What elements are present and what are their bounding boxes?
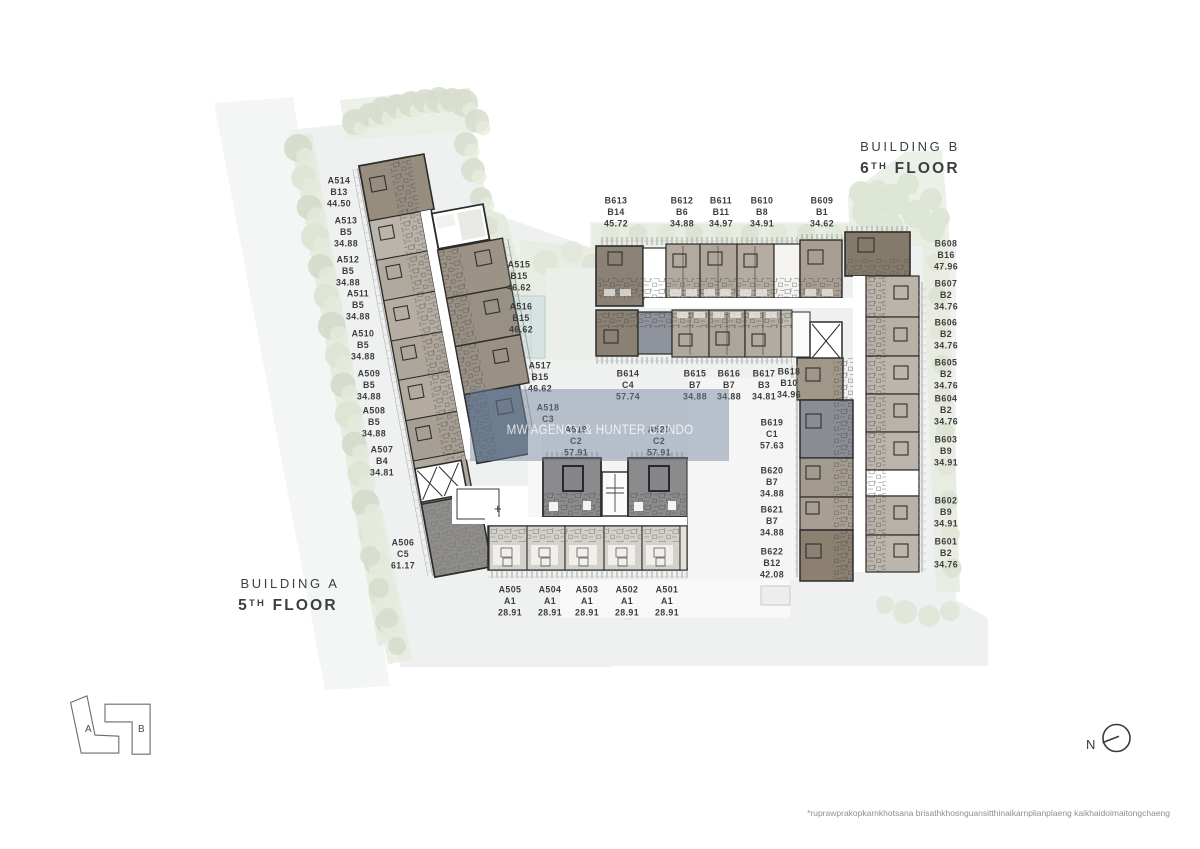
svg-text:B608: B608 <box>935 239 958 249</box>
svg-text:42.08: 42.08 <box>760 570 784 580</box>
svg-text:B2: B2 <box>940 290 952 300</box>
svg-text:B3: B3 <box>758 380 770 390</box>
svg-text:B15: B15 <box>531 372 548 382</box>
svg-text:B2: B2 <box>940 329 952 339</box>
svg-text:34.76: 34.76 <box>934 417 958 427</box>
svg-text:B11: B11 <box>713 207 730 217</box>
svg-text:A507: A507 <box>371 445 394 455</box>
svg-text:B7: B7 <box>689 380 701 390</box>
svg-text:B13: B13 <box>330 187 347 197</box>
svg-text:34.88: 34.88 <box>760 489 784 499</box>
svg-text:B12: B12 <box>763 558 780 568</box>
svg-text:B619: B619 <box>761 418 784 428</box>
svg-text:+: + <box>494 501 502 516</box>
svg-text:34.97: 34.97 <box>709 219 733 229</box>
svg-text:B610: B610 <box>751 196 774 206</box>
svg-text:C1: C1 <box>766 429 778 439</box>
svg-text:34.76: 34.76 <box>934 560 958 570</box>
svg-text:A504: A504 <box>539 585 562 595</box>
svg-text:34.96: 34.96 <box>777 390 801 400</box>
svg-text:B15: B15 <box>512 313 529 323</box>
svg-text:B5: B5 <box>342 266 354 276</box>
svg-text:34.91: 34.91 <box>934 458 958 468</box>
svg-text:C4: C4 <box>622 380 634 390</box>
svg-text:34.88: 34.88 <box>357 392 381 402</box>
svg-text:B5: B5 <box>352 300 364 310</box>
svg-text:B10: B10 <box>780 378 797 388</box>
svg-text:A1: A1 <box>661 596 673 606</box>
svg-text:A1: A1 <box>504 596 516 606</box>
svg-text:34.76: 34.76 <box>934 341 958 351</box>
svg-text:B15: B15 <box>510 271 527 281</box>
svg-text:57.63: 57.63 <box>760 441 784 451</box>
svg-text:B621: B621 <box>761 505 784 515</box>
svg-text:B7: B7 <box>723 380 735 390</box>
svg-text:B616: B616 <box>718 369 741 379</box>
svg-text:44.50: 44.50 <box>327 199 351 209</box>
svg-text:B606: B606 <box>935 318 958 328</box>
svg-text:B617: B617 <box>753 369 776 379</box>
svg-text:A1: A1 <box>581 596 593 606</box>
svg-text:B9: B9 <box>940 446 952 456</box>
svg-text:B1: B1 <box>816 207 828 217</box>
svg-text:B601: B601 <box>935 537 958 547</box>
svg-text:6TH FLOOR: 6TH FLOOR <box>860 160 960 177</box>
svg-text:B620: B620 <box>761 466 784 476</box>
svg-text:A501: A501 <box>656 585 679 595</box>
svg-text:B614: B614 <box>617 369 640 379</box>
svg-text:A508: A508 <box>363 406 386 416</box>
svg-text:BUILDING A: BUILDING A <box>241 576 340 591</box>
svg-text:B14: B14 <box>607 207 624 217</box>
svg-text:47.96: 47.96 <box>934 262 958 272</box>
svg-text:A509: A509 <box>358 369 381 379</box>
svg-text:34.88: 34.88 <box>346 312 370 322</box>
svg-text:28.91: 28.91 <box>655 608 679 618</box>
svg-text:A516: A516 <box>510 302 533 312</box>
svg-text:B612: B612 <box>671 196 694 206</box>
svg-text:A1: A1 <box>544 596 556 606</box>
svg-text:34.88: 34.88 <box>334 239 358 249</box>
svg-text:A506: A506 <box>392 538 415 548</box>
svg-text:B6: B6 <box>676 207 688 217</box>
svg-text:A510: A510 <box>352 329 375 339</box>
svg-text:B605: B605 <box>935 358 958 368</box>
svg-text:34.91: 34.91 <box>750 219 774 229</box>
svg-text:B5: B5 <box>340 227 352 237</box>
svg-text:34.88: 34.88 <box>336 278 360 288</box>
svg-text:B: B <box>138 724 145 735</box>
svg-text:B618: B618 <box>778 367 801 377</box>
svg-text:N: N <box>1086 737 1095 752</box>
svg-text:B603: B603 <box>935 435 958 445</box>
svg-text:34.88: 34.88 <box>670 219 694 229</box>
svg-text:46.62: 46.62 <box>509 325 533 335</box>
svg-text:A1: A1 <box>621 596 633 606</box>
svg-text:A515: A515 <box>508 260 531 270</box>
svg-text:B609: B609 <box>811 196 834 206</box>
svg-text:A514: A514 <box>328 176 351 186</box>
svg-text:28.91: 28.91 <box>498 608 522 618</box>
svg-text:A517: A517 <box>529 361 552 371</box>
svg-text:B607: B607 <box>935 279 958 289</box>
svg-text:B7: B7 <box>766 516 778 526</box>
svg-text:45.72: 45.72 <box>604 219 628 229</box>
svg-text:A511: A511 <box>347 289 369 299</box>
svg-text:A502: A502 <box>616 585 639 595</box>
svg-text:34.76: 34.76 <box>934 302 958 312</box>
svg-text:B5: B5 <box>368 417 380 427</box>
svg-text:A512: A512 <box>337 255 360 265</box>
svg-text:B7: B7 <box>766 477 778 487</box>
svg-text:61.17: 61.17 <box>391 561 415 571</box>
svg-text:B2: B2 <box>940 548 952 558</box>
svg-text:34.76: 34.76 <box>934 381 958 391</box>
svg-text:34.88: 34.88 <box>351 352 375 362</box>
svg-text:5TH FLOOR: 5TH FLOOR <box>238 597 338 614</box>
svg-text:B9: B9 <box>940 507 952 517</box>
svg-text:A503: A503 <box>576 585 599 595</box>
svg-text:B2: B2 <box>940 369 952 379</box>
svg-text:B613: B613 <box>605 196 628 206</box>
svg-text:28.91: 28.91 <box>615 608 639 618</box>
svg-text:B611: B611 <box>710 196 732 206</box>
svg-text:BUILDING B: BUILDING B <box>860 139 960 154</box>
svg-text:C5: C5 <box>397 549 409 559</box>
svg-text:B4: B4 <box>376 456 388 466</box>
svg-text:B5: B5 <box>357 340 369 350</box>
svg-text:B622: B622 <box>761 547 784 557</box>
svg-text:A: A <box>85 724 92 735</box>
svg-text:B2: B2 <box>940 405 952 415</box>
svg-text:34.91: 34.91 <box>934 519 958 529</box>
svg-text:B5: B5 <box>363 380 375 390</box>
svg-text:34.88: 34.88 <box>362 429 386 439</box>
svg-text:B604: B604 <box>935 394 958 404</box>
svg-text:A505: A505 <box>499 585 522 595</box>
svg-text:34.81: 34.81 <box>752 392 776 402</box>
svg-text:*ruprawprakopkarnkhotsana bris: *ruprawprakopkarnkhotsana brisathkhosngu… <box>807 808 1170 818</box>
svg-text:28.91: 28.91 <box>538 608 562 618</box>
svg-text:34.62: 34.62 <box>810 219 834 229</box>
svg-text:MW AGENCY & HUNTER CONDO: MW AGENCY & HUNTER CONDO <box>507 421 694 437</box>
svg-text:34.81: 34.81 <box>370 468 394 478</box>
svg-text:46.62: 46.62 <box>507 283 531 293</box>
svg-text:A513: A513 <box>335 216 358 226</box>
svg-text:B16: B16 <box>937 250 954 260</box>
svg-text:B8: B8 <box>756 207 768 217</box>
svg-text:B602: B602 <box>935 496 958 506</box>
svg-text:B615: B615 <box>684 369 707 379</box>
svg-text:28.91: 28.91 <box>575 608 599 618</box>
svg-text:34.88: 34.88 <box>760 528 784 538</box>
